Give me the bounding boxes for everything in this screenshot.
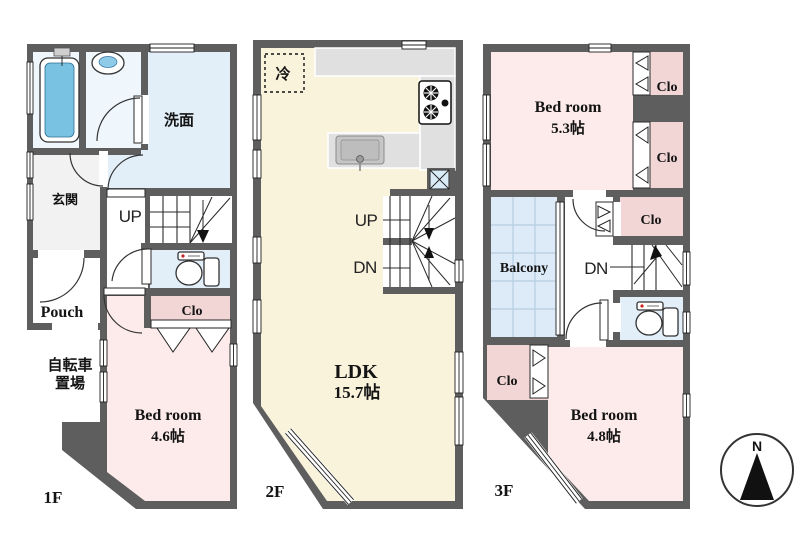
- 3f-bedroom2-size: 4.8帖: [587, 427, 621, 445]
- 3f-closet4-label: Clo: [497, 374, 518, 389]
- 3f-doorway: [612, 303, 621, 332]
- 1f-wall: [27, 148, 141, 155]
- stove-icon: [419, 81, 451, 124]
- bicycle-label-2: 置場: [55, 375, 85, 392]
- 3f-bedroom2-label: Bed room: [571, 407, 638, 424]
- 1f-doorway: [38, 250, 84, 258]
- entrance-label: 玄関: [52, 192, 78, 207]
- 1f-opening: [52, 322, 98, 331]
- 3f-wall: [483, 190, 565, 197]
- 1f-closet-label: Clo: [182, 304, 203, 319]
- 2f-floor-label: 2F: [266, 482, 285, 501]
- 3f-bedroom1-size: 5.3帖: [551, 119, 585, 137]
- 1f-bedroom-label: Bed room: [135, 407, 202, 424]
- 3f-dn-label: DN: [584, 259, 608, 278]
- bicycle-label-1: 自転車: [47, 356, 92, 374]
- porch-label: Pouch: [41, 304, 84, 321]
- 1f-floor-label: 1F: [44, 488, 63, 507]
- 3f-doorway: [570, 340, 606, 347]
- 2f-dn-label: DN: [353, 258, 377, 277]
- 1f-doorway: [99, 151, 108, 187]
- 1f-bedroom-size: 4.6帖: [151, 427, 185, 445]
- 1f-wall: [141, 243, 232, 250]
- washroom-label: 洗面: [164, 111, 194, 129]
- 3f-closet1-label: Clo: [657, 80, 678, 95]
- ldk-size: 15.7帖: [334, 382, 381, 402]
- compass-north-label: N: [752, 438, 762, 454]
- 3f-floor-label: 3F: [495, 481, 514, 500]
- 1f-wall: [79, 48, 86, 148]
- 3f-wall: [613, 236, 690, 245]
- wash-basin-icon: [92, 52, 124, 74]
- 3f-wall: [633, 95, 683, 122]
- compass-icon: N: [721, 434, 793, 506]
- 3f-closet3-label: Clo: [641, 213, 662, 228]
- refrigerator-label: 冷: [275, 65, 290, 83]
- 1f-wall: [145, 196, 150, 250]
- 3f-doorway: [573, 190, 606, 197]
- bathtub-icon: [40, 48, 79, 142]
- floorplan-svg: 洗面 玄関 UP Pouch 自転車 置場 Clo Bed room 4.6帖 …: [0, 0, 809, 538]
- pipe-shaft-icon: [430, 170, 449, 189]
- 3f-closet2-label: Clo: [657, 151, 678, 166]
- floor-3f: Bed room 5.3帖 Clo Clo Clo Clo Balcony DN…: [483, 44, 690, 509]
- floorplan-image: 洗面 玄関 UP Pouch 自転車 置場 Clo Bed room 4.6帖 …: [0, 0, 809, 538]
- balcony-label: Balcony: [500, 261, 548, 276]
- 3f-bedroom1-label: Bed room: [535, 99, 602, 116]
- 1f-wall: [144, 296, 151, 328]
- 3f-bedroom2: [548, 347, 683, 501]
- 2f-up-label: UP: [355, 211, 378, 230]
- 1f-up-label: UP: [119, 207, 142, 226]
- ldk-label: LDK: [334, 361, 378, 383]
- 2f-wall: [383, 287, 455, 294]
- 1f-staircase: [150, 196, 232, 243]
- 3f-wall: [548, 340, 690, 347]
- floor-1f: 洗面 玄関 UP Pouch 自転車 置場 Clo Bed room 4.6帖 …: [27, 44, 237, 509]
- 2f-wall: [390, 189, 455, 196]
- 2f-wall: [383, 238, 412, 245]
- 3f-wall: [613, 290, 690, 297]
- floor-2f: 冷: [253, 40, 463, 509]
